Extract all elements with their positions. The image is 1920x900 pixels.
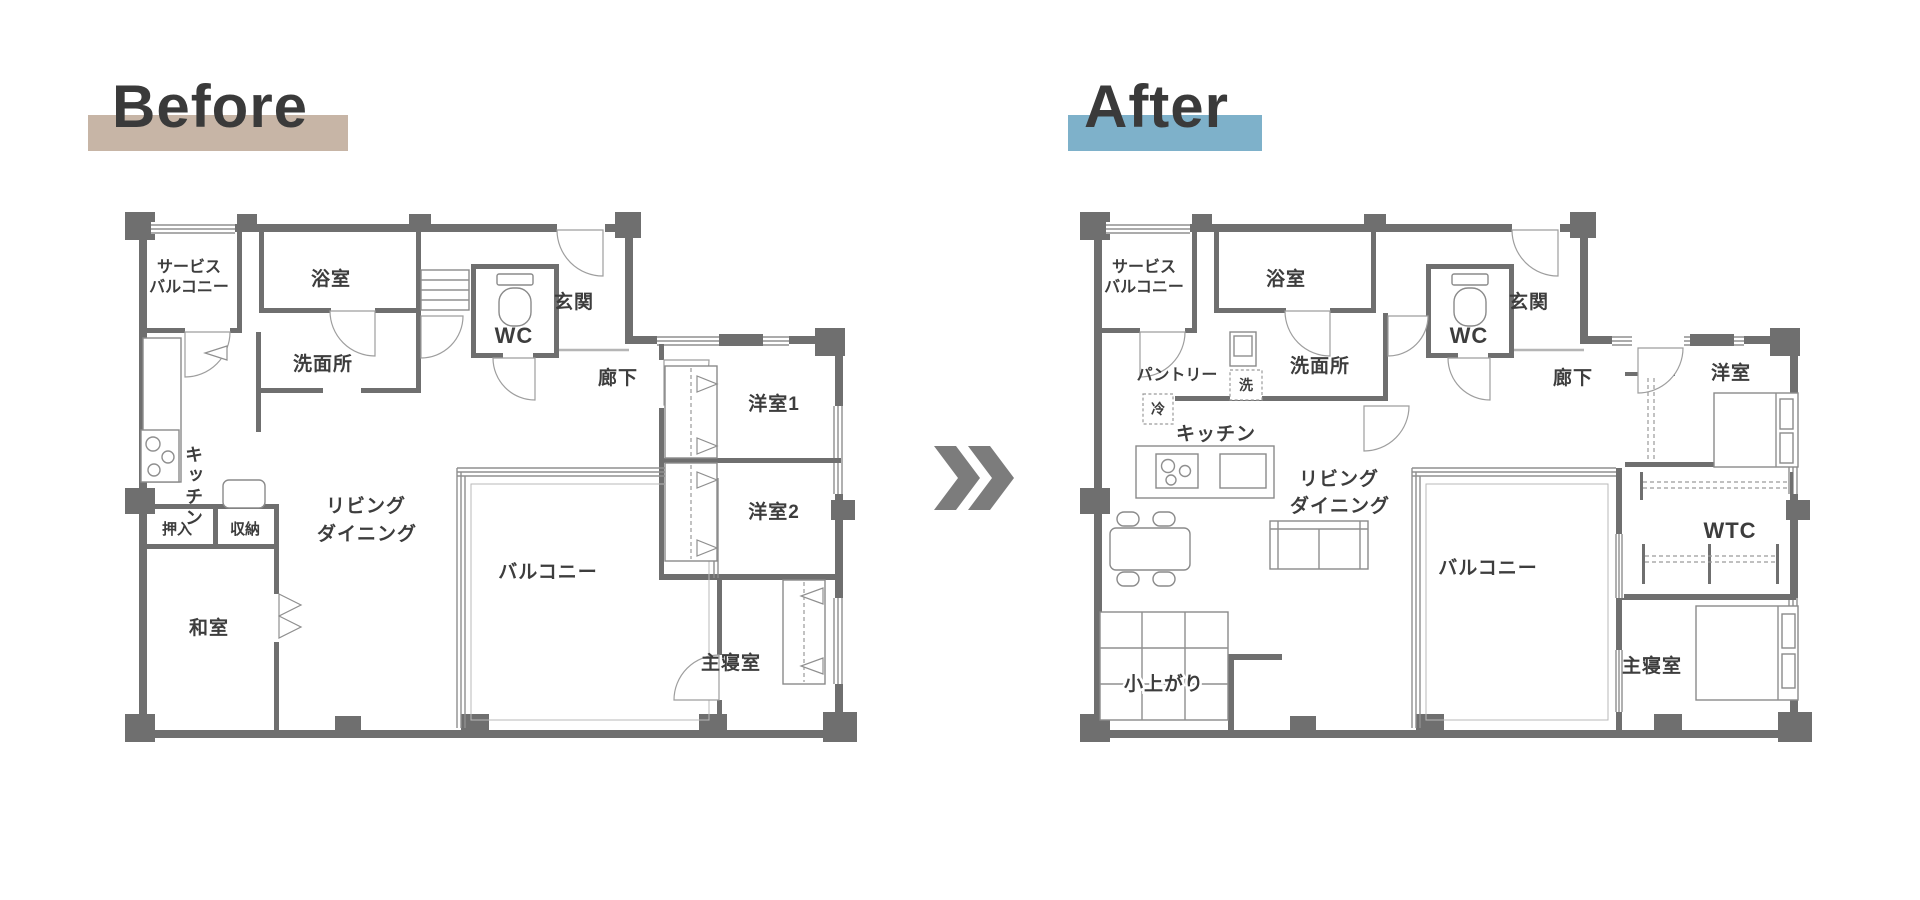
- room-label-balcony: バルコニー: [498, 561, 598, 583]
- room-label-pantry: パントリー: [1137, 366, 1218, 384]
- door-arc: [493, 358, 535, 400]
- door-arc: [330, 311, 375, 356]
- room-label-living: ダイニング: [1290, 494, 1390, 517]
- room-label-bath: 浴室: [311, 267, 351, 290]
- label-washer: 洗: [1239, 377, 1253, 393]
- room-label-wc: WC: [495, 323, 534, 348]
- sliding-door-mark: [279, 616, 301, 638]
- sink-icon: [1220, 454, 1266, 488]
- before-title-block: Before: [88, 64, 388, 164]
- after-title: After: [1068, 64, 1368, 150]
- stove-icon: [141, 430, 179, 482]
- sink-icon: [223, 480, 265, 508]
- room-label-service-balcony: バルコニー: [1104, 278, 1184, 296]
- room-label-living: リビング: [326, 494, 406, 517]
- sliding-door-mark: [279, 594, 301, 616]
- room-label-service-balcony: サービス: [1112, 258, 1176, 276]
- room-label-entrance: 玄関: [554, 290, 594, 313]
- room-label-master: 主寝室: [1622, 654, 1682, 677]
- room-label-wc: WC: [1450, 323, 1489, 348]
- room-label-service-balcony: サービス: [157, 258, 221, 276]
- before-floor-plan-svg: サービス バルコニー 浴室 洗面所 WC 玄関 廊下 洋室1 洋室2 リビング …: [125, 210, 860, 745]
- entrance-door-arc: [557, 230, 603, 276]
- room-label-bath: 浴室: [1266, 267, 1306, 290]
- windows: [151, 222, 847, 684]
- room-label-western: 洋室: [1711, 361, 1751, 384]
- kitchen-island: [1136, 446, 1274, 498]
- room-label-washroom: 洗面所: [293, 352, 353, 375]
- room-label-japanese-room: 和室: [189, 616, 229, 639]
- before-title: Before: [88, 64, 388, 150]
- door-arc: [1364, 406, 1409, 451]
- room-label-service-balcony: バルコニー: [149, 278, 229, 296]
- after-floor-plan-svg: サービス バルコニー 浴室 パントリー 冷 洗 洗面所 WC 玄関 廊下 洋室 …: [1080, 210, 1815, 745]
- entrance-door-arc: [1512, 230, 1558, 276]
- room-label-kitchen: キッチン: [1176, 424, 1256, 445]
- sofa-icon: [1270, 521, 1368, 569]
- washing-machine-icon: [1230, 332, 1256, 366]
- stove-icon: [1156, 454, 1198, 488]
- room-label-entrance: 玄関: [1509, 290, 1549, 313]
- toilet-icon: [1452, 274, 1488, 326]
- door-arc: [1448, 358, 1490, 400]
- double-chevron-right-icon: [928, 446, 1028, 510]
- room-label-hallway: 廊下: [1553, 366, 1593, 389]
- label-refrigerator: 冷: [1151, 401, 1165, 417]
- closet-western1: [665, 366, 717, 458]
- bed-icon-western: [1714, 393, 1798, 467]
- toilet-icon: [497, 274, 533, 326]
- room-label-living: ダイニング: [317, 522, 417, 545]
- tatami-grid: [1100, 612, 1228, 720]
- room-label-western2: 洋室2: [748, 500, 800, 523]
- balcony-glazing: [1412, 468, 1624, 728]
- door-arc: [1285, 311, 1330, 356]
- before-after-transition: [928, 446, 1028, 515]
- fixtures: [141, 270, 825, 684]
- room-label-hallway: 廊下: [598, 366, 638, 389]
- room-label-living: リビング: [1299, 467, 1379, 490]
- after-floor-plan: サービス バルコニー 浴室 パントリー 冷 洗 洗面所 WC 玄関 廊下 洋室 …: [1080, 210, 1815, 745]
- dining-table-icon: [1110, 512, 1190, 586]
- closet-master: [783, 580, 825, 684]
- room-label-koagari: 小上がり: [1124, 672, 1204, 695]
- door-arc: [1638, 348, 1683, 393]
- bed-icon-master: [1696, 606, 1798, 700]
- room-label-master: 主寝室: [701, 651, 761, 674]
- door-arc: [1388, 316, 1428, 356]
- before-floor-plan: サービス バルコニー 浴室 洗面所 WC 玄関 廊下 洋室1 洋室2 リビング …: [125, 210, 860, 745]
- after-title-block: After: [1068, 64, 1368, 164]
- room-label-wtc: WTC: [1703, 518, 1756, 543]
- room-label-kitchen: キッチン: [180, 445, 206, 529]
- door-arc: [421, 316, 463, 358]
- room-label-washroom: 洗面所: [1290, 354, 1350, 377]
- room-label-shuno: 収納: [230, 520, 260, 538]
- room-label-balcony: バルコニー: [1438, 557, 1538, 579]
- room-label-western1: 洋室1: [748, 392, 800, 415]
- closet-western2: [665, 463, 717, 561]
